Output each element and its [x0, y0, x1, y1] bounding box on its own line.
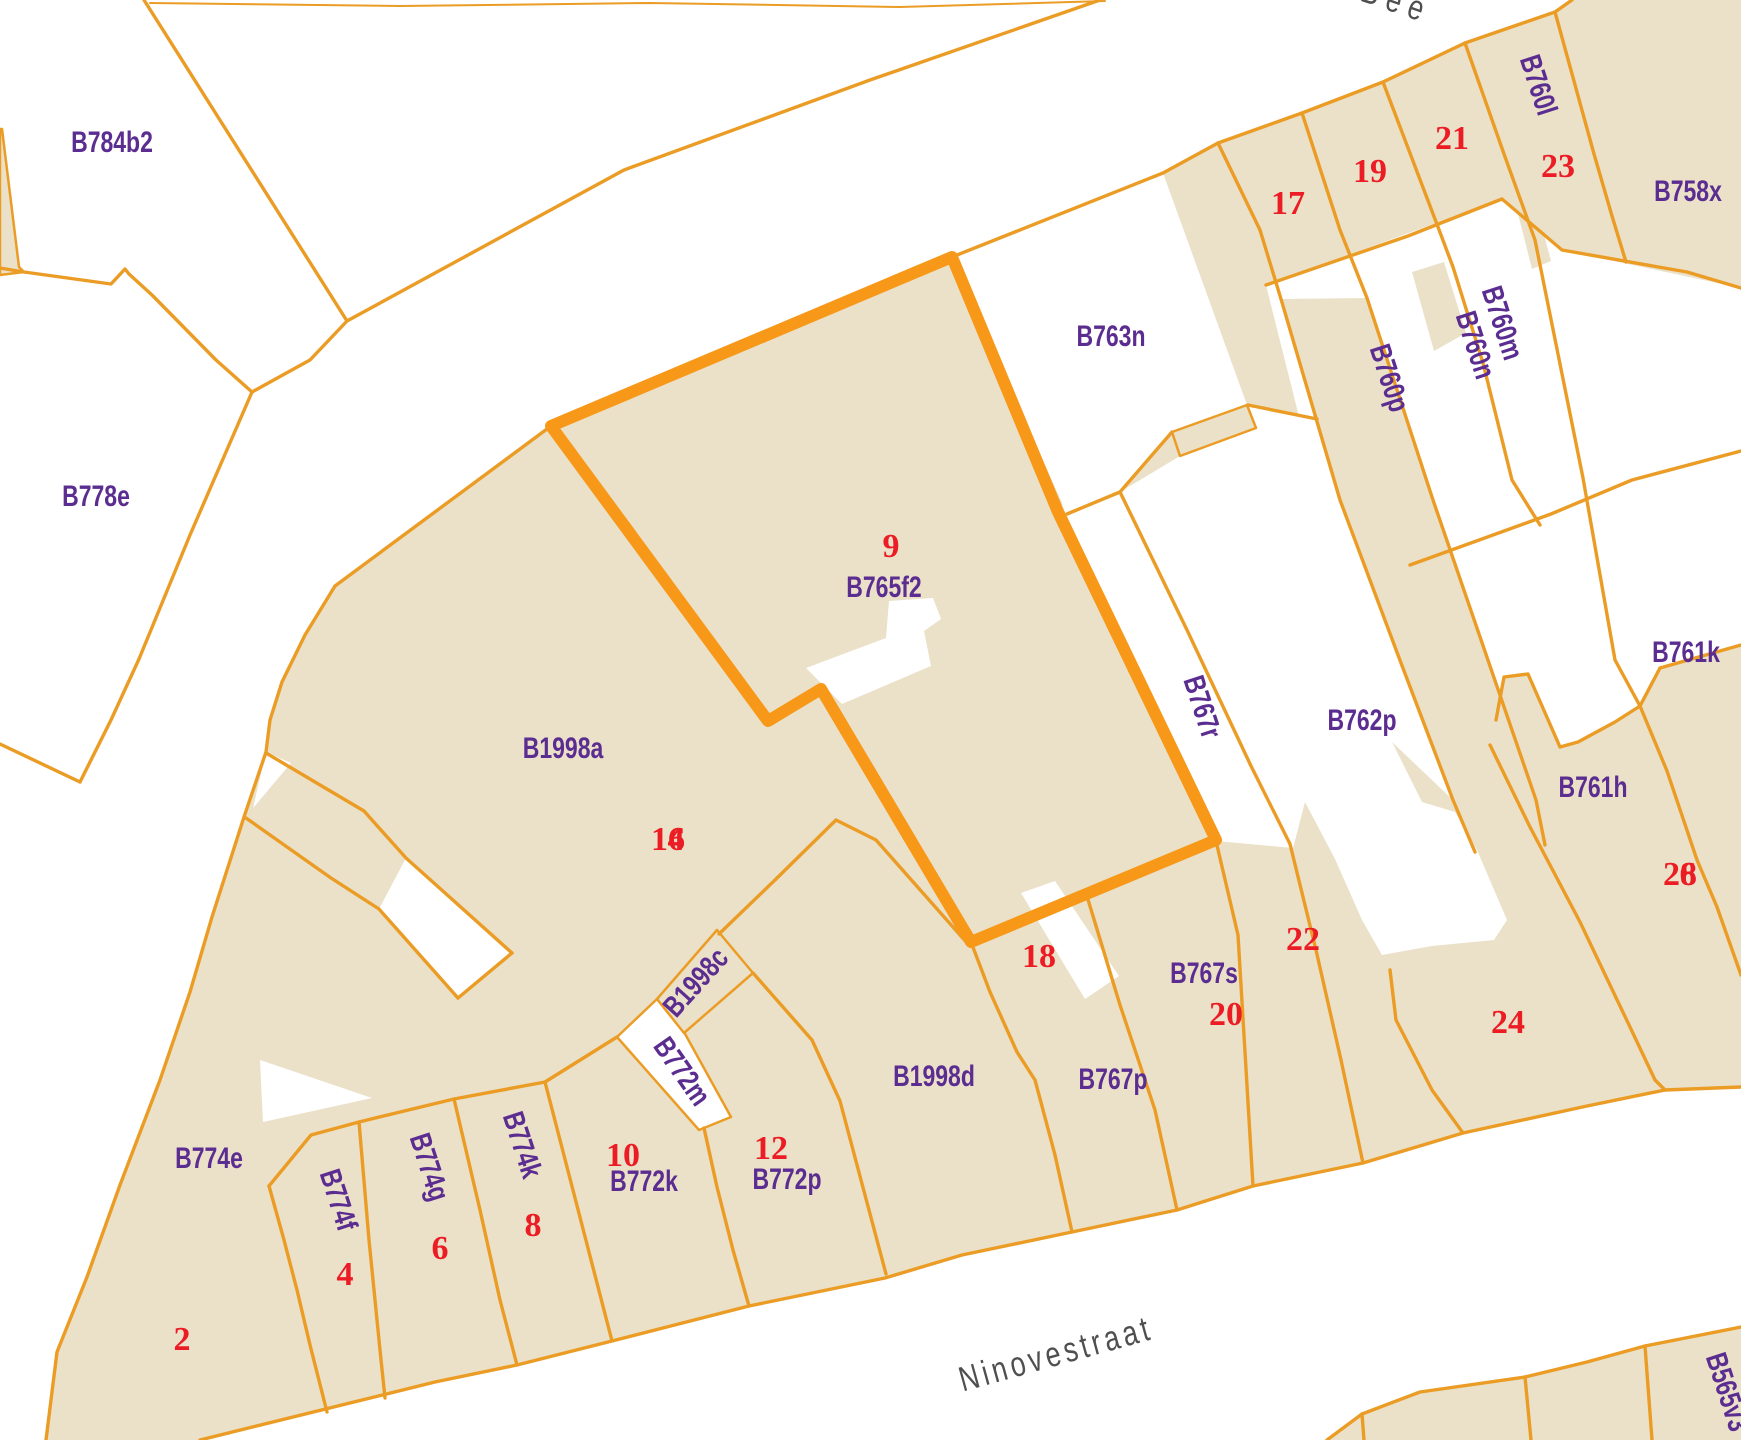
svg-text:4: 4 [337, 1256, 354, 1293]
svg-text:19: 19 [1353, 153, 1387, 190]
svg-text:21: 21 [1435, 120, 1469, 157]
svg-text:B1998d: B1998d [893, 1059, 975, 1093]
svg-text:B762p: B762p [1328, 703, 1397, 737]
svg-text:8: 8 [525, 1207, 542, 1244]
svg-text:22: 22 [1286, 921, 1320, 958]
svg-text:17: 17 [1271, 185, 1305, 222]
svg-text:B758x: B758x [1654, 174, 1722, 208]
svg-text:18: 18 [1022, 938, 1056, 975]
svg-text:B761k: B761k [1652, 635, 1720, 669]
svg-text:6: 6 [1680, 856, 1697, 893]
svg-text:B772p: B772p [753, 1162, 822, 1196]
svg-text:B761h: B761h [1559, 770, 1628, 804]
svg-text:9: 9 [883, 528, 900, 565]
svg-text:23: 23 [1541, 148, 1575, 185]
svg-text:6: 6 [432, 1230, 449, 1267]
svg-text:10: 10 [606, 1137, 640, 1174]
svg-text:B767s: B767s [1170, 956, 1238, 990]
svg-text:B763n: B763n [1077, 319, 1146, 353]
svg-text:4: 4 [668, 821, 685, 858]
svg-text:24: 24 [1491, 1004, 1525, 1041]
svg-text:B778e: B778e [62, 479, 130, 513]
svg-text:B774e: B774e [175, 1141, 243, 1175]
svg-text:B767p: B767p [1079, 1062, 1148, 1096]
svg-text:2: 2 [174, 1321, 191, 1358]
svg-text:B765f2: B765f2 [846, 570, 921, 604]
svg-text:B1998a: B1998a [523, 731, 604, 765]
svg-text:20: 20 [1209, 996, 1243, 1033]
svg-text:B784b2: B784b2 [71, 125, 153, 159]
svg-text:Bee: Bee [1356, 0, 1437, 31]
svg-text:12: 12 [754, 1130, 788, 1167]
